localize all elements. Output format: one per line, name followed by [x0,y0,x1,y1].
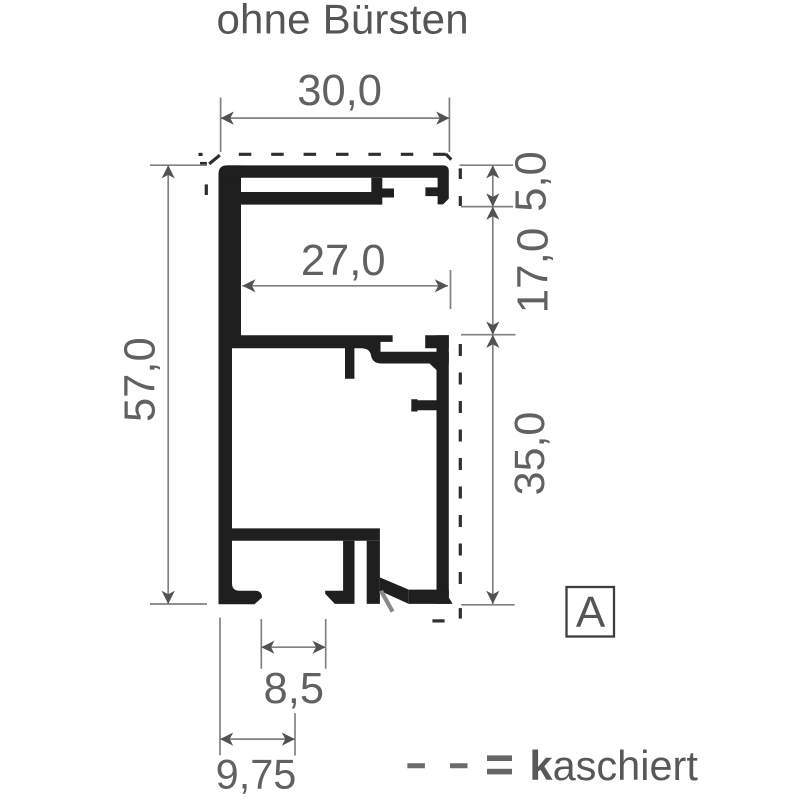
svg-text:35,0: 35,0 [506,412,554,496]
svg-text:17,0: 17,0 [509,228,558,314]
svg-text:8,5: 8,5 [264,665,324,713]
svg-text:27,0: 27,0 [301,237,386,285]
svg-text:57,0: 57,0 [117,337,165,422]
svg-text:ohne Bürsten: ohne Bürsten [217,0,469,43]
svg-text:A: A [576,588,606,637]
svg-text:kaschiert: kaschiert [530,742,699,789]
svg-text:30,0: 30,0 [297,67,382,115]
svg-text:9,75: 9,75 [216,751,297,798]
svg-text:5,0: 5,0 [508,151,556,211]
